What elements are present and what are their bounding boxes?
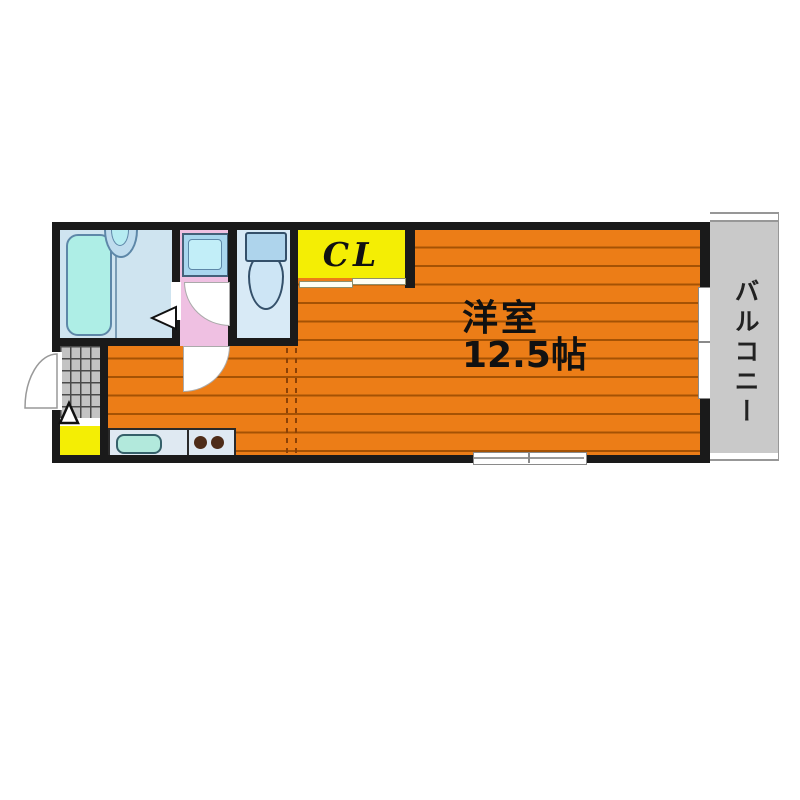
kitchen-sink-icon [116,434,162,454]
window-right-divider [698,341,710,343]
bathroom-door-icon [148,304,178,332]
balcony-label: バルコニー [722,268,768,438]
kitchen-counter-divider [187,428,189,455]
closet-sliding-door [352,278,406,285]
wall-left [52,222,60,463]
toilet-tank [245,232,287,262]
shoe-cabinet [60,426,103,455]
wall-toilet-closet [290,222,298,346]
balcony-border [778,212,780,461]
stove-burner-icon [211,436,224,449]
balcony-border [710,212,779,214]
room-name: 洋室 [462,300,587,337]
wall-below-bathroom [52,338,180,346]
floor-plan: バルコニー CL 洋室 12.5帖 [0,0,800,800]
kitchen-boundary-dashed-line [295,348,297,453]
room-size: 12.5帖 [462,337,587,374]
balcony-border [710,459,779,461]
bathroom-divider-line [115,256,117,338]
bathtub-icon [66,234,112,336]
wall-closet-right [405,222,415,288]
window-bottom [473,452,587,465]
wall-entry-kitchen [100,346,108,463]
entry-step-triangle-icon [58,400,80,426]
stove-burner-icon [194,436,207,449]
closet-label: CL [298,230,405,278]
wall-bottom [52,455,710,463]
kitchen-boundary-dashed-line [286,348,288,453]
room-label: 洋室 12.5帖 [462,300,587,374]
wall-below-toilet [228,338,298,346]
wall-top [52,222,710,230]
closet-sliding-door [299,281,353,288]
washing-machine-pan-basin [188,239,222,270]
window-bottom-tick [528,452,530,463]
